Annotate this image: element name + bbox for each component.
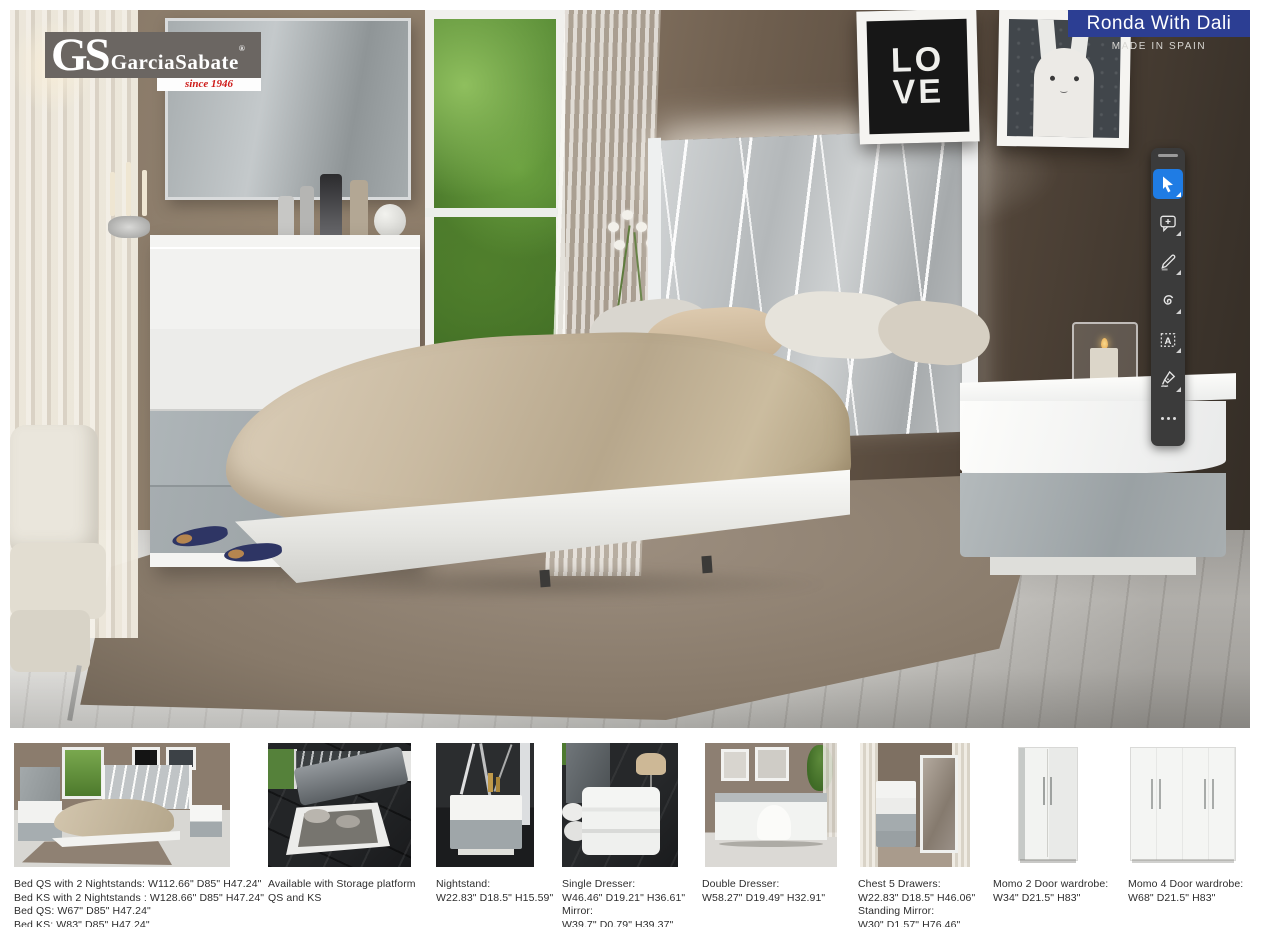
product-caption-wardrobe-4door: Momo 4 Door wardrobe: W68" D21.5" H83" — [1128, 878, 1243, 905]
vase — [350, 180, 368, 240]
dresser-drawer — [150, 247, 420, 331]
product-caption-single-dresser: Single Dresser: W46.46" D19.21" H36.61" … — [562, 878, 685, 927]
bunny-eye — [1050, 76, 1055, 81]
curve-scribble-icon — [1158, 291, 1178, 311]
product-thumbnail-nightstand — [436, 743, 534, 867]
hero-photo: LO VE GS GarciaSabate® since 1946 Ronda … — [10, 10, 1250, 728]
window — [425, 10, 565, 360]
pencil-icon — [1158, 252, 1178, 272]
text-box-tool[interactable]: A — [1153, 325, 1183, 355]
nightstand-plinth — [990, 557, 1196, 575]
product-thumbnail-double-dresser — [705, 743, 837, 867]
curve-tool[interactable] — [1153, 286, 1183, 316]
orchid-flower — [622, 210, 633, 220]
armchair-seat — [10, 543, 106, 619]
orchid-flower — [636, 222, 647, 232]
made-in-label: MADE IN SPAIN — [1068, 41, 1250, 52]
product-caption-double-dresser: Double Dresser: W58.27" D19.49" H32.91" — [702, 878, 825, 905]
armchair-base — [10, 610, 90, 672]
logo-monogram: GS — [51, 36, 108, 75]
candle — [110, 172, 115, 216]
pen-tool[interactable] — [1153, 247, 1183, 277]
bunny-eye — [1074, 76, 1079, 81]
candle — [142, 170, 147, 216]
cursor-arrow-icon — [1158, 174, 1178, 194]
product-thumbnail-chest — [860, 743, 970, 867]
orchid-flower — [614, 240, 625, 250]
product-caption-wardrobe-2door: Momo 2 Door wardrobe: W34" D21.5" H83" — [993, 878, 1108, 905]
orchid-flower — [608, 222, 619, 232]
page: LO VE GS GarciaSabate® since 1946 Ronda … — [0, 0, 1263, 927]
toolbar-drag-handle[interactable] — [1158, 154, 1178, 157]
registered-mark: ® — [239, 44, 245, 53]
bunny-nose — [1060, 88, 1068, 93]
bunny-head — [1033, 47, 1095, 148]
nightstand — [960, 378, 1236, 590]
ink-signature-tool[interactable] — [1153, 364, 1183, 394]
vase — [300, 186, 314, 240]
select-tool[interactable] — [1153, 169, 1183, 199]
bed-foot — [701, 556, 712, 574]
add-comment-tool[interactable] — [1153, 208, 1183, 238]
product-thumbnail-wardrobe-4door — [1128, 743, 1238, 868]
product-caption-bed: Bed QS with 2 Nightstands: W112.66" D85"… — [14, 878, 264, 927]
vase — [374, 204, 406, 238]
annotation-toolbar: A — [1151, 148, 1185, 446]
title-banner: Ronda With Dali — [1068, 10, 1250, 37]
product-caption-nightstand: Nightstand: W22.83" D18.5" H15.59" — [436, 878, 553, 905]
ellipsis-icon — [1161, 417, 1176, 420]
armchair — [10, 425, 98, 557]
product-thumbnail-wardrobe-2door — [1008, 743, 1088, 868]
product-thumbnail-single-dresser — [562, 743, 678, 867]
product-caption-chest: Chest 5 Drawers: W22.83" D18.5" H46.06" … — [858, 878, 975, 927]
product-thumbnail-storage — [268, 743, 411, 867]
text-box-icon: A — [1158, 330, 1178, 350]
candle — [126, 162, 131, 216]
nightstand-drawer — [960, 401, 1226, 473]
logo-name: GarciaSabate® — [111, 44, 246, 75]
comment-plus-icon — [1158, 213, 1178, 233]
love-poster-line2: VE — [892, 76, 944, 109]
more-tools-button[interactable] — [1153, 403, 1183, 433]
candelabra-base — [108, 216, 150, 238]
window-mullion — [425, 208, 565, 217]
nightstand-drawer — [960, 473, 1226, 557]
logo-tagline: since 1946 — [157, 78, 261, 91]
vase — [278, 196, 294, 240]
bed-foot — [539, 570, 550, 588]
product-thumbnail-bed — [14, 743, 230, 867]
ink-pen-icon — [1158, 369, 1178, 389]
brand-logo-box: GS GarciaSabate® — [45, 32, 261, 78]
svg-text:A: A — [1165, 336, 1172, 347]
product-caption-storage: Available with Storage platform QS and K… — [268, 878, 416, 905]
love-poster: LO VE — [856, 10, 979, 145]
vase — [320, 174, 342, 240]
